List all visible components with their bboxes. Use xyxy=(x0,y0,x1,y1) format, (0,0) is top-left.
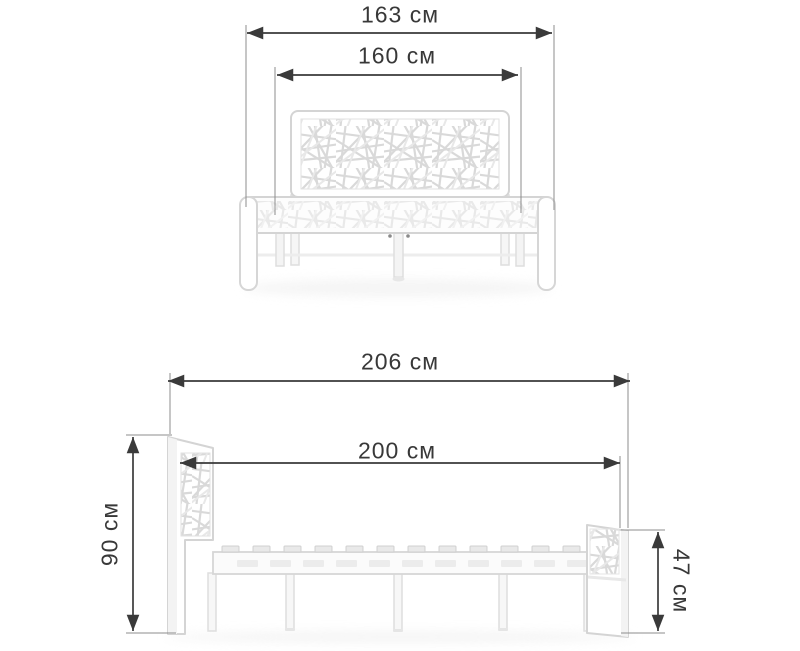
bed-slats xyxy=(222,546,611,552)
side-view xyxy=(165,437,635,643)
corner-post-left xyxy=(240,197,257,290)
headboard-side-back-face xyxy=(168,437,177,634)
screw-right xyxy=(406,234,410,238)
dim-label-footboard-height: 47 см xyxy=(670,549,693,613)
side-legs xyxy=(208,573,592,631)
footboard-back-face xyxy=(621,530,628,637)
dim-label-overall-width: 163 см xyxy=(361,4,439,27)
center-leg-foot xyxy=(393,277,405,282)
front-view-shadow xyxy=(243,279,553,297)
screw-left xyxy=(388,234,392,238)
dim-label-sleeping-length: 200 см xyxy=(358,440,436,463)
corner-post-right xyxy=(538,197,555,290)
dim-label-headboard-height: 90 см xyxy=(99,502,122,566)
diagram-canvas: 163 см 160 см 206 см 200 см 90 см 47 см xyxy=(0,0,800,651)
headboard-side-web-panel xyxy=(181,453,210,536)
headboard-web-panel xyxy=(301,119,499,189)
mesh-base xyxy=(257,201,539,228)
dim-label-overall-length: 206 см xyxy=(361,351,439,374)
center-leg xyxy=(394,232,403,277)
front-leg-right xyxy=(516,232,524,266)
dim-label-sleeping-width: 160 см xyxy=(358,45,436,68)
footboard-web-panel xyxy=(590,529,619,574)
front-leg-left xyxy=(276,232,284,266)
side-view-shadow xyxy=(165,631,635,643)
front-view xyxy=(240,111,555,297)
